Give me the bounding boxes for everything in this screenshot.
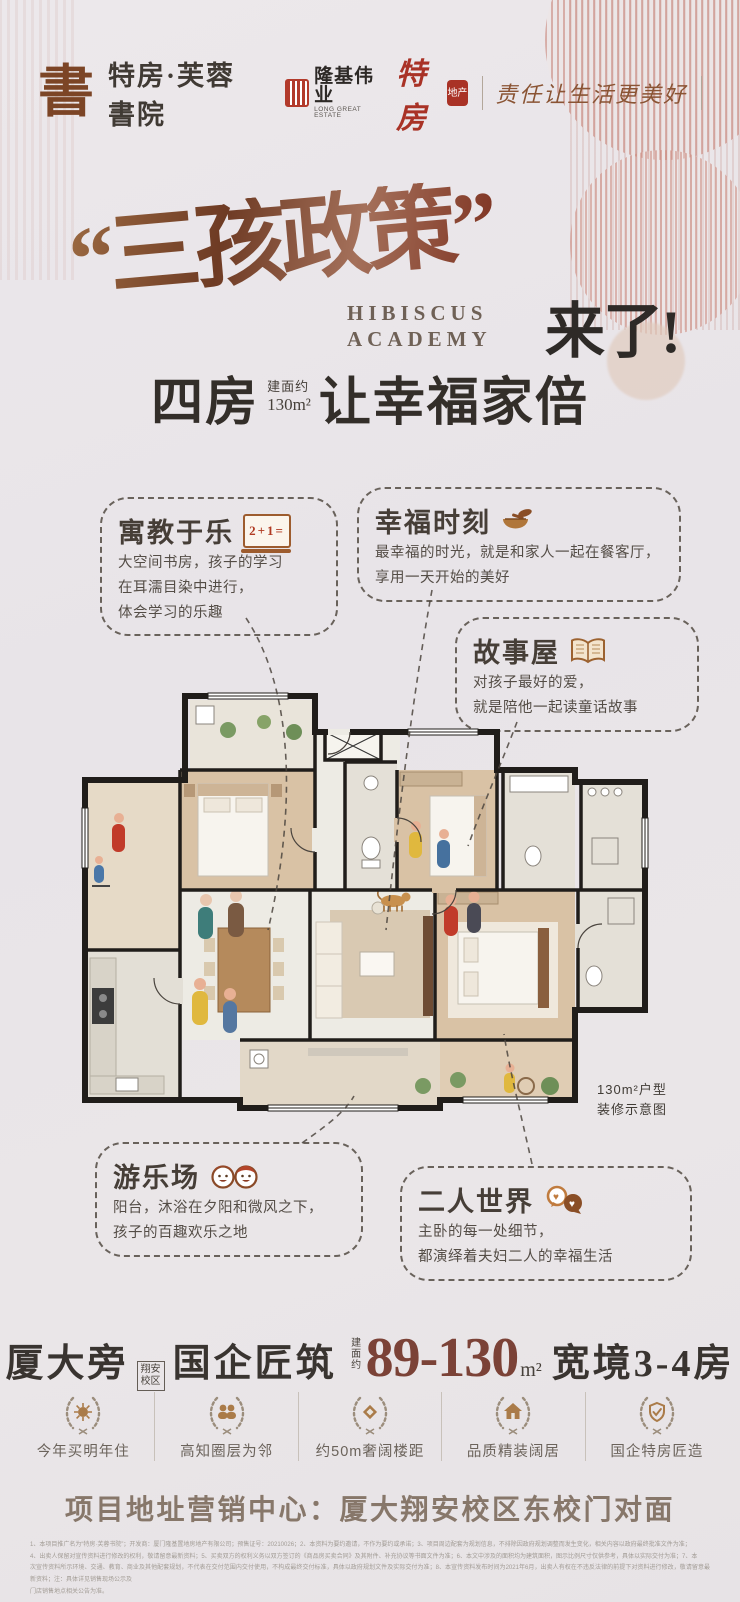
- partner-subtitle: LONG GREAT ESTATE: [314, 107, 380, 120]
- disclaimer-line: 1、本项目推广名为“特房·芙蓉书院”；开发商：厦门隆基置地房地产有限公司；预售证…: [30, 1540, 710, 1552]
- area-unit: m²: [520, 1359, 542, 1382]
- bowl-spoon-icon: [500, 507, 534, 535]
- svg-text:♥: ♥: [553, 1192, 561, 1203]
- hero-subheadline: 四房 建面约 130m² 让幸福家倍: [0, 360, 740, 435]
- area-range: 89-130: [366, 1326, 519, 1390]
- hero-english-line2: ACADEMY: [347, 326, 492, 352]
- callout-moment-line: 享用一天开始的美好: [375, 568, 663, 590]
- laurel-diamond-icon: [346, 1392, 394, 1436]
- hero-english-line1: HIBISCUS: [347, 300, 492, 326]
- badge-neighbors: 高知圈层为邻: [154, 1392, 297, 1461]
- callout-study-line: 大空间书房，孩子的学习: [118, 553, 320, 575]
- open-book-icon: [569, 636, 607, 666]
- developer-name: 特房: [396, 49, 444, 137]
- shu-calligraphy-logo: 書: [38, 65, 94, 121]
- developer-seal-icon: 地产: [447, 80, 469, 106]
- callout-study-title: 寓教于乐: [118, 511, 234, 550]
- callout-play-title: 游乐场: [113, 1156, 200, 1195]
- campus-tag: 翔安 校区: [137, 1361, 165, 1391]
- location-text: 厦大旁: [6, 1332, 129, 1387]
- stripe-band-decoration: [570, 0, 740, 330]
- header-divider: [482, 76, 483, 110]
- callout-study-line: 在耳濡目染中进行，: [118, 578, 320, 600]
- area-value: 130m²: [267, 395, 311, 415]
- spec-line: 厦大旁 翔安 校区 国企匠筑 建面约 89-130 m² 宽境3-4房: [0, 1326, 740, 1395]
- callout-couple-title: 二人世界: [418, 1180, 534, 1219]
- partner-logo-icon: [285, 79, 309, 107]
- callout-moment-title: 幸福时刻: [375, 501, 491, 540]
- badge-buy-now: 今年买明年住: [12, 1392, 154, 1461]
- layout-text: 宽境3-4房: [552, 1332, 735, 1387]
- brand-name: 特房·芙蓉書院: [108, 54, 263, 132]
- callout-moment: 幸福时刻 最幸福的时光，就是和家人一起在餐客厅， 享用一天开始的美好: [357, 487, 681, 602]
- floor-plan: [78, 688, 653, 1120]
- disclaimer-line: 次宣传资料所示环境、交通、教育、商业及其他配套规划，不代表在交付范围内交付使用，…: [30, 1563, 710, 1586]
- badge-row: 今年买明年住 高知圈层为邻 约50m奢阔楼距: [12, 1392, 728, 1461]
- blackboard-icon: 2+1=: [243, 514, 291, 548]
- badge-building-distance: 约50m奢阔楼距: [298, 1392, 441, 1461]
- callout-story-title: 故事屋: [473, 631, 560, 670]
- badge-label: 高知圈层为邻: [180, 1440, 273, 1461]
- disclaimer-text: 1、本项目推广名为“特房·芙蓉书院”；开发商：厦门隆基置地房地产有限公司；预售证…: [30, 1540, 710, 1598]
- callout-couple-line: 都演绎着夫妇二人的幸福生活: [418, 1247, 674, 1269]
- laurel-people-icon: [203, 1392, 251, 1436]
- partner-logo: 隆基伟业 LONG GREAT ESTATE: [285, 67, 380, 120]
- header-logo-row: 書 特房·芙蓉書院 隆基伟业 LONG GREAT ESTATE 特房 地产 责…: [38, 58, 714, 128]
- builder-text: 国企匠筑: [173, 1332, 337, 1387]
- area-label: 建面约: [267, 380, 311, 395]
- callout-couple: 二人世界 ♥ ♥ 主卧的每一处细节， 都演绎着夫妇二人的幸福生活: [400, 1166, 692, 1281]
- callout-play-line: 阳台，沐浴在夕阳和微风之下，: [113, 1198, 345, 1220]
- brand-slogan: 责任让生活更美好: [495, 77, 687, 109]
- laurel-shield-check-icon: [633, 1392, 681, 1436]
- developer-logo: 特房 地产: [396, 49, 468, 137]
- badge-label: 品质精装阔居: [467, 1440, 560, 1461]
- campus-tag-line2: 校区: [141, 1376, 161, 1388]
- badge-label: 国企特房匠造: [610, 1440, 703, 1461]
- disclaimer-line: 4、出卖人保留对宣传资料进行修改的权利，敬请留意最新资料；5、买卖双方的权利义务…: [30, 1552, 710, 1564]
- callout-study: 寓教于乐 2+1= 大空间书房，孩子的学习 在耳濡目染中进行， 体会学习的乐趣: [100, 497, 338, 636]
- campus-tag-line1: 翔安: [141, 1364, 161, 1376]
- chat-hearts-icon: ♥ ♥: [543, 1185, 587, 1215]
- svg-text:♥: ♥: [569, 1199, 577, 1210]
- callout-moment-line: 最幸福的时光，就是和家人一起在餐客厅，: [375, 543, 663, 565]
- callout-couple-line: 主卧的每一处细节，: [418, 1222, 674, 1244]
- hero-english-subtitle: HIBISCUS ACADEMY: [347, 300, 492, 353]
- header-divider: [701, 76, 702, 110]
- rooms-count: 四房: [151, 360, 259, 435]
- project-address: 项目地址营销中心：厦大翔安校区东校门对面: [0, 1488, 740, 1528]
- poster-page: 書 特房·芙蓉書院 隆基伟业 LONG GREAT ESTATE 特房 地产 责…: [0, 0, 740, 1602]
- stripe-left-decoration: [0, 0, 75, 280]
- badge-label: 今年买明年住: [37, 1440, 130, 1461]
- floor-plan-caption-line2: 装修示意图: [597, 1100, 667, 1120]
- hero-suffix: 来了!: [545, 283, 679, 370]
- floor-plan-caption-line1: 130m²户型: [597, 1080, 667, 1100]
- hero-tagline: 让幸福家倍: [319, 360, 589, 435]
- badge-state-owned: 国企特房匠造: [585, 1392, 728, 1461]
- callout-play-line: 孩子的百趣欢乐之地: [113, 1223, 345, 1245]
- disclaimer-line: 门店销售地点相关公告为准。: [30, 1587, 710, 1599]
- callout-study-line: 体会学习的乐趣: [118, 603, 320, 625]
- badge-label: 约50m奢阔楼距: [316, 1440, 425, 1461]
- spec-area-label: 建面约: [347, 1337, 362, 1370]
- kids-faces-icon: [209, 1162, 261, 1190]
- floor-plan-caption: 130m²户型 装修示意图: [597, 1080, 667, 1120]
- partner-name: 隆基伟业: [314, 67, 380, 105]
- callout-play: 游乐场 阳台，沐浴在夕阳和微风之下， 孩子的百趣欢乐之地: [95, 1142, 363, 1257]
- badge-quality-decor: 品质精装阔居: [441, 1392, 584, 1461]
- laurel-house-icon: [489, 1392, 537, 1436]
- laurel-sun-icon: [59, 1392, 107, 1436]
